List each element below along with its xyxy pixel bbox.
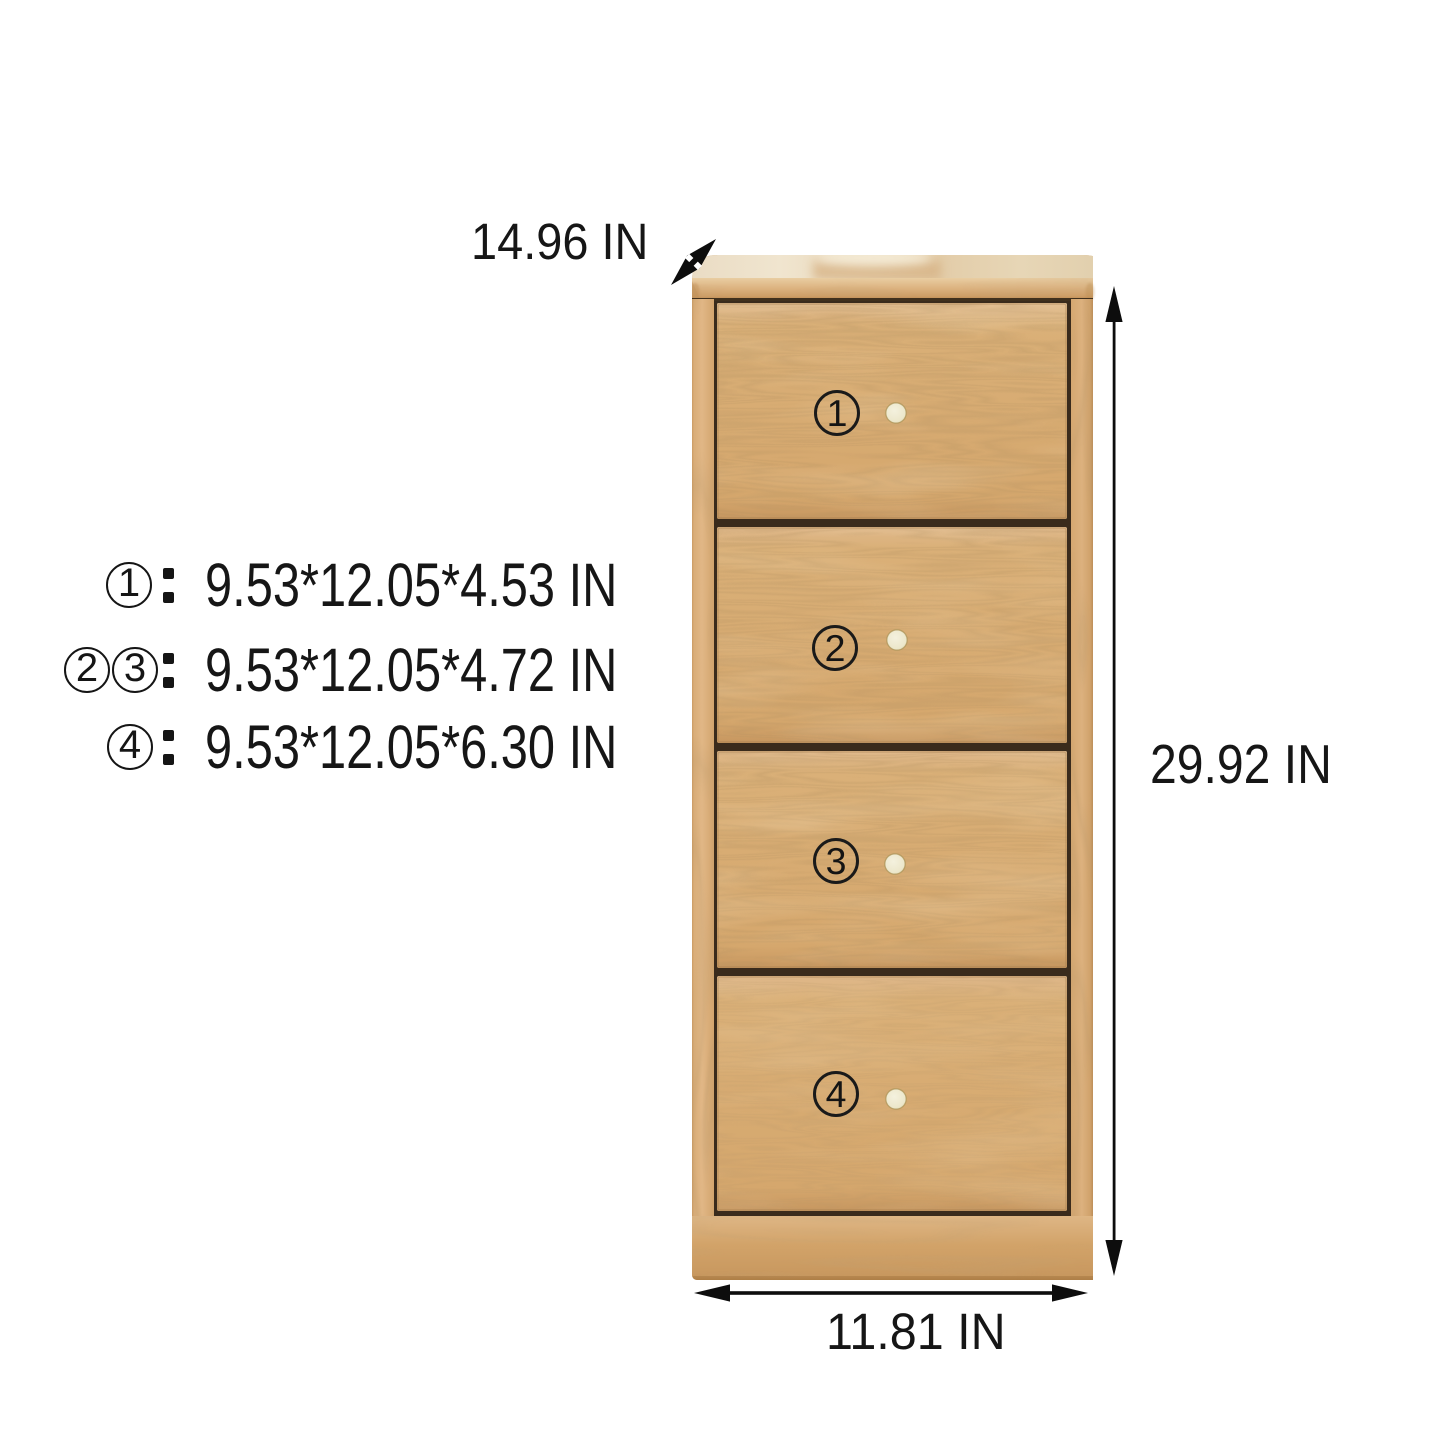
svg-text:2: 2: [825, 627, 846, 669]
svg-text:1: 1: [827, 392, 848, 434]
svg-text:3: 3: [826, 840, 847, 882]
svg-text:4: 4: [826, 1073, 847, 1115]
